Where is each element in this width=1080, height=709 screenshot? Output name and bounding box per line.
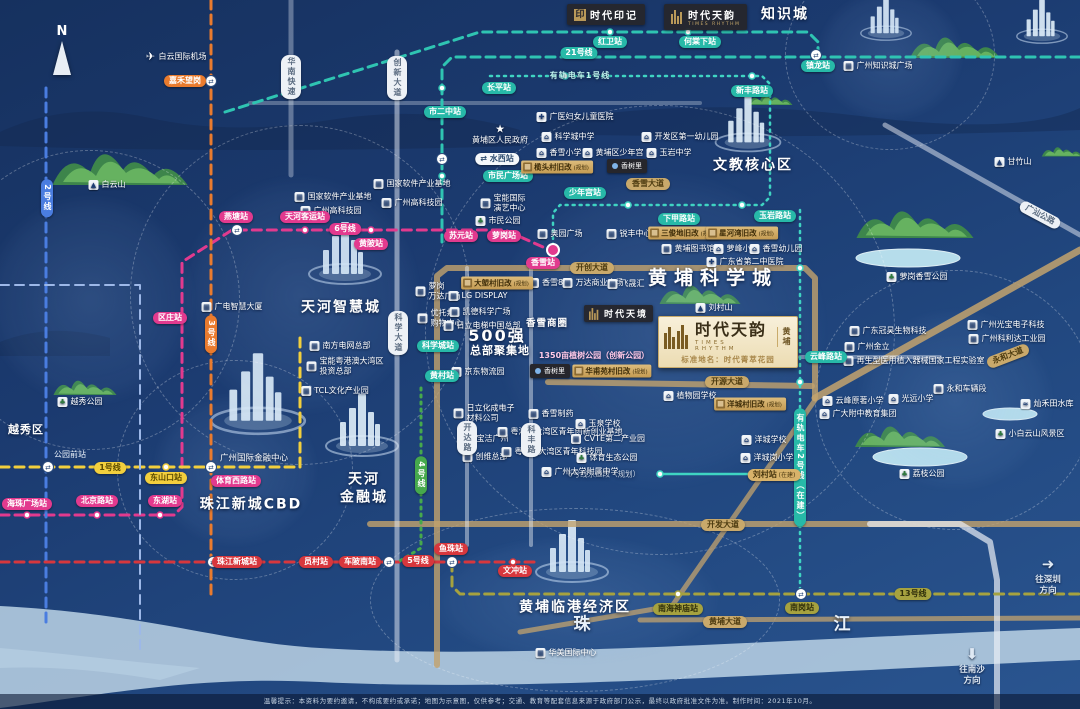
station-badge: 文冲站 (498, 565, 532, 577)
b-icon: ▦ (310, 341, 320, 351)
sch-icon: ⌂ (583, 148, 593, 158)
station-badge: 黄陂站 (354, 238, 388, 250)
sch-icon: ⌂ (714, 244, 724, 254)
sch-icon: ⌂ (820, 409, 830, 419)
building-icon: ▦ (523, 163, 532, 172)
station-dot (797, 265, 803, 271)
poi: ★黄埔区人民政府 (472, 125, 528, 146)
times-bars-icon (589, 308, 600, 320)
road-name-pill: 科丰路 (521, 423, 541, 457)
station-badge: 科学城站 (417, 340, 459, 352)
station-badge: 市二中站 (424, 106, 466, 118)
road-name-pill: 开达路 (457, 421, 477, 455)
poi-label: 广州光宝电子科技 (981, 320, 1045, 330)
poi-label: 小白云山风景区 (1009, 429, 1065, 439)
sch-icon: ⌂ (542, 132, 552, 142)
road-name-pill: 创新大道 (387, 56, 407, 100)
mt-icon: ▲ (696, 303, 706, 313)
poi: ▦广州金立 (845, 342, 890, 352)
poi-label: 锐丰中心 (620, 229, 652, 239)
times-imprint-label: 时代印记 (590, 7, 638, 22)
poi-label: CVTE第二产业园 (584, 434, 645, 444)
project-logo-card: 时代天韵 TIMES RHYTHM 黄埔 标准地名：时代菁萃花园 (658, 316, 798, 368)
poi: ▦CVTE第二产业园 (571, 434, 645, 444)
station-dot (657, 471, 663, 477)
road-name-pill: 开发大道 (701, 519, 745, 531)
hosp-icon: ✚ (537, 112, 547, 122)
station-badge: 北京路站 (76, 495, 118, 507)
poi-label: 甘竹山 (1008, 157, 1032, 167)
project-latin-name: TIMES RHYTHM (695, 340, 772, 352)
poi-label: TCL文化产业园 (314, 386, 368, 396)
region-label: 越秀区 (8, 423, 44, 437)
station-dot (439, 85, 445, 91)
station-badge: 体育西路站 (211, 475, 261, 487)
poi: ♣越秀公园 (58, 397, 103, 407)
poi: ✚广医妇女儿童医院 (537, 112, 614, 122)
station-dot (749, 73, 755, 79)
station-badge: 长平站 (482, 82, 516, 94)
poi-label: 越秀公园 (71, 397, 103, 407)
station-badge: 海珠广场站 (2, 498, 52, 510)
poi-label: 云峰原著小学 (836, 396, 884, 406)
poi: ▦锐丰中心 (607, 229, 652, 239)
b-icon: ▦ (536, 648, 546, 658)
region-label: 江 (834, 614, 857, 635)
station-badge: 萝岗站 (487, 230, 521, 242)
building-icon: ▦ (463, 279, 472, 288)
redevelopment-label: 洋城村旧改 (727, 399, 765, 410)
region-label: 知识城 (761, 6, 809, 24)
station-badge: 何棠下站 (679, 36, 721, 48)
transfer-arrows-icon: ⇄ (234, 227, 240, 235)
poi: ⌂玉泉学校 (576, 419, 621, 429)
station-badge: 区庄站 (153, 312, 187, 324)
station-badge: 云峰路站 (805, 351, 847, 363)
redevelopment-label: 星河湾旧改 (719, 228, 757, 239)
poi-label: 市民公园 (489, 216, 521, 226)
station-badge: 苏元站 (444, 230, 478, 242)
sch-icon: ⌂ (576, 419, 586, 429)
poi-label: 荔枝公园 (913, 469, 945, 479)
redevelopment-badge: ▦大塱村旧改(规划) (461, 277, 533, 290)
park-icon: ♣ (58, 397, 68, 407)
road-name-pill: 黄埔大道 (703, 616, 747, 628)
poi-label: 香雪幼儿园 (763, 244, 803, 254)
b-icon: ▦ (607, 229, 617, 239)
sch-icon: ⌂ (647, 148, 657, 158)
b-icon: ▦ (498, 427, 508, 437)
station-badge: 嘉禾望岗 (164, 75, 206, 87)
region-label: 珠 (574, 614, 597, 635)
sch-icon: ⌂ (537, 148, 547, 158)
poi-label: 华美国际中心 (549, 648, 597, 658)
redevelopment-badge: ▦华甫苑村旧改(规划) (572, 365, 651, 378)
mini-project-badge: 香树里 (530, 364, 570, 378)
poi: ♣萝岗香雪公园 (887, 272, 948, 282)
poi: ▦广州科利达工业园 (969, 334, 1046, 344)
poi-label: 玉岩中学 (660, 148, 692, 158)
station-badge: 黄村站 (425, 370, 459, 382)
station-badge: 5号线 (402, 555, 434, 567)
direction-label: 往深圳 方向 (1035, 575, 1061, 596)
sch-icon: ⌂ (889, 394, 899, 404)
sch-icon: ⌂ (664, 391, 674, 401)
poi-label: 光远小学 (902, 394, 934, 404)
road-kaiyuan (548, 382, 812, 386)
station-badge: 下甲路站 (658, 213, 700, 225)
poi-label: 南方电网总部 (323, 341, 371, 351)
poi: ▦飞晟汇 (608, 279, 645, 289)
poi-label: 广州高科技园 (395, 198, 443, 208)
poi-label: 广东省第二中医院 (720, 257, 784, 267)
building-icon: ▦ (716, 400, 725, 409)
transfer-arrows-icon: ⇄ (439, 156, 445, 164)
poi: ▦黄埔图书馆 (662, 244, 715, 254)
station-badge: 鱼珠站 (434, 543, 468, 555)
b-icon: ▦ (374, 179, 384, 189)
poi: ✚广东省第二中医院 (707, 257, 784, 267)
poi-label: 萝岗香雪公园 (900, 272, 948, 282)
station-badge: 车陂南站 (339, 556, 381, 568)
plane-icon: ✈ (146, 52, 156, 62)
redevelopment-label: 华甫苑村旧改 (585, 366, 630, 377)
b-icon: ▦ (202, 302, 212, 312)
road-name-pill: 开创大道 (570, 262, 614, 274)
b-icon: ▦ (301, 386, 311, 396)
b-icon: ▦ (307, 361, 317, 371)
station-badge: 少年宫站 (564, 187, 606, 199)
project-district: 黄埔 (777, 327, 792, 347)
project-dot-icon (535, 368, 541, 374)
sch-icon: ⌂ (750, 244, 760, 254)
building-icon: ▦ (574, 367, 583, 376)
station-badge: ⇄ 水西站 (475, 153, 519, 165)
station-badge: 公园前站 (49, 449, 91, 461)
station-dot (625, 202, 631, 208)
transfer-arrows-icon: ⇄ (449, 559, 455, 567)
mt-icon: ▲ (89, 180, 99, 190)
compass: N (44, 24, 80, 90)
poi: ⌂科学城中学 (542, 132, 595, 142)
transfer-arrows-icon: ⇄ (798, 591, 804, 599)
poi-label: 广医妇女儿童医院 (550, 112, 614, 122)
park-icon: ♣ (900, 469, 910, 479)
station-badge: 刘村站 (在建) (748, 469, 801, 481)
b-icon: ▦ (662, 244, 672, 254)
poi: ▦国家软件产业基地 (295, 192, 372, 202)
region-label: 黄埔科学城 (648, 267, 778, 291)
poi: ▦再生型医用植入器械国家工程实验室 (844, 356, 985, 366)
station-dot (302, 227, 308, 233)
station-badge: 天河客运站 (280, 211, 330, 223)
direction-arrow-icon: ➜ (1035, 555, 1061, 575)
poi: ⌂香雪幼儿园 (750, 244, 803, 254)
transfer-arrows-icon: ⇄ (45, 464, 51, 472)
direction-arrow-icon: ⬇ (959, 645, 985, 665)
b-icon: ▦ (969, 334, 979, 344)
poi-label: 国家软件产业基地 (308, 192, 372, 202)
b-icon: ▦ (934, 384, 944, 394)
station-dot (157, 512, 163, 518)
station-badge: 21号线 (560, 47, 597, 59)
poi: ▦凯德科学广场 (450, 307, 511, 317)
b-icon: ▦ (571, 434, 581, 444)
poi: ▦永和车辆段 (934, 384, 987, 394)
redevelopment-label: 榄头村旧改 (534, 162, 572, 173)
building-icon: ▦ (650, 229, 659, 238)
poi-label: 广州金立 (858, 342, 890, 352)
poi-label: 日立电梯中国总部 (457, 321, 521, 331)
poi: ♣体育生态公园 (577, 453, 638, 463)
poi: ⌂云峰原著小学 (823, 396, 884, 406)
poi: ▲刘村山 (696, 303, 733, 313)
mini-project-badge: 香树里 (607, 159, 647, 173)
station-badge: 4号线 (415, 456, 427, 494)
station-badge: 2号线 (41, 179, 53, 217)
star-icon: ★ (495, 125, 505, 135)
poi: ▦广电智慧大厦 (202, 302, 263, 312)
project-standard-name: 标准地名：时代菁萃花园 (664, 354, 792, 365)
transfer-arrows-icon: ⇄ (386, 559, 392, 567)
region-label: 天河 金融城 (340, 472, 388, 507)
b-icon: ▦ (295, 192, 305, 202)
redevelopment-label: 三俊地旧改 (661, 228, 699, 239)
b-icon: ▦ (444, 321, 454, 331)
direction-sign: ⬇往南沙 方向 (959, 645, 985, 687)
b-icon: ▦ (450, 307, 460, 317)
poi: ≈灿禾田水库 (1021, 399, 1074, 409)
poi: ▦TCL文化产业园 (301, 386, 368, 396)
station-badge: 员村站 (299, 556, 333, 568)
station-badge: 东山口站 (145, 472, 187, 484)
poi: ▦南方电网总部 (310, 341, 371, 351)
times-bars-icon (671, 10, 684, 24)
sch-icon: ⌂ (741, 453, 751, 463)
poi: ▦华美国际中心 (536, 648, 597, 658)
times-skyline-label: 时代天境 (604, 307, 648, 320)
poi-label: 京东物流园 (465, 367, 505, 377)
times-imprint-icon: 印 (574, 9, 586, 21)
b-icon: ▦ (529, 409, 539, 419)
poi-label: 黄埔区少年宫 (596, 148, 644, 158)
b-icon: ▦ (563, 278, 573, 288)
poi-label: 白云山 (102, 180, 126, 190)
station-badge: 3号线 (205, 315, 217, 353)
disclaimer: 温馨提示：本资料为要约邀请，不构成要约或承诺；地图为示意图，仅供参考；交通、教育… (0, 694, 1080, 709)
logo-times-skyline: 时代天境 (584, 305, 653, 322)
poi-label: 香雪小学 (550, 148, 582, 158)
station-badge: 南海神庙站 (653, 603, 703, 615)
redevelopment-label: 大塱村旧改 (474, 278, 512, 289)
poi-label: 国家软件产业基地 (387, 179, 451, 189)
building-icon: ▦ (708, 229, 717, 238)
redevelopment-badge: ▦榄头村旧改(规划) (521, 161, 593, 174)
poi: ♣荔枝公园 (900, 469, 945, 479)
poi: ▦宝能国际 演艺中心 (481, 193, 526, 212)
poi: ▦广州光宝电子科技 (968, 320, 1045, 330)
b-icon: ▦ (449, 291, 459, 301)
poi-label: LG DISPLAY (462, 291, 508, 301)
b-icon: ▦ (454, 408, 464, 418)
poi: ▦国家软件产业基地 (374, 179, 451, 189)
logo-times-imprint: 印 时代印记 (567, 4, 645, 25)
poi: ♣市民公园 (476, 216, 521, 226)
region-label: 1350亩植树公园（创新公园） (539, 351, 649, 361)
station-badge: 珠江新城站 (212, 556, 262, 568)
poi: ▦广东冠昊生物科技 (850, 326, 927, 336)
poi: ⌂光远小学 (889, 394, 934, 404)
mini-project-label: 香树里 (621, 161, 642, 171)
poi-label: 飞晟汇 (621, 279, 645, 289)
poi: ✈白云国际机场 (146, 52, 207, 62)
poi: ⌂香雪小学 (537, 148, 582, 158)
station-badge: 13号线 (894, 588, 931, 600)
poi: ⌂广州大学附属中学 (542, 467, 619, 477)
road-name-pill: 香雪大道 (626, 178, 670, 190)
transfer-arrows-icon: ⇄ (208, 464, 214, 472)
station-dot (94, 512, 100, 518)
poi-label: 奥园广场 (551, 229, 583, 239)
station-dot (675, 591, 681, 597)
station-badge: 6号线 (329, 223, 361, 235)
poi-label: 宝能粤港澳大湾区 投资总部 (320, 356, 384, 375)
poi-label: 白云国际机场 (159, 52, 207, 62)
region-label: 有轨电车1号线 (550, 71, 611, 81)
mt-icon: ▲ (995, 157, 1005, 167)
b-icon: ▦ (608, 279, 618, 289)
poi-label: 体育生态公园 (590, 453, 638, 463)
station-badge: 镇龙站 (801, 60, 835, 72)
poi-label: 洋城学校 (755, 435, 787, 445)
poi-label: 广州科利达工业园 (982, 334, 1046, 344)
poi: ▦LG DISPLAY (449, 291, 508, 301)
sch-icon: ⌂ (542, 467, 552, 477)
map-canvas: ⇄⇄⇄⇄⇄⇄⇄⇄⇄⇄ 知识城文教核心区黄埔科学城天河智慧城天河 金融城珠江新城C… (0, 0, 1080, 709)
station-dot (163, 464, 169, 470)
region-label: 广州国际金融中心 (220, 454, 288, 465)
poi: ⌂开发区第一幼儿园 (642, 132, 719, 142)
station-badge: 香雪站 (526, 257, 560, 269)
park-icon: ♣ (577, 453, 587, 463)
road-name-pill: 科学大道 (388, 311, 408, 355)
road-name-pill: 开源大道 (705, 376, 749, 388)
transfer-arrows-icon: ⇄ (813, 52, 819, 60)
b-icon: ▦ (968, 320, 978, 330)
poi-label: 广东冠昊生物科技 (863, 326, 927, 336)
poi-label: 凯德科学广场 (463, 307, 511, 317)
poi-label: 植物园学校 (677, 391, 717, 401)
region-label: 香雪商圈 (526, 318, 568, 330)
b-icon: ▦ (416, 286, 426, 296)
poi-label: 科学城中学 (555, 132, 595, 142)
b-icon: ▦ (845, 342, 855, 352)
project-bars-icon (664, 325, 690, 349)
station-dot (607, 29, 613, 35)
poi: ▦京东物流园 (452, 367, 505, 377)
redevelopment-badge: ▦星河湾旧改(规划) (706, 227, 778, 240)
sch-icon: ⌂ (823, 396, 833, 406)
mini-project-label: 香树里 (544, 366, 565, 376)
b-icon: ▦ (481, 198, 491, 208)
project-dot-icon (612, 163, 618, 169)
water-icon: ≈ (1021, 399, 1031, 409)
poi: ⌂洋城岗小学 (741, 453, 794, 463)
poi-label: 灿禾田水库 (1034, 399, 1074, 409)
metro-line-知识城线 (225, 32, 818, 112)
b-icon: ▦ (418, 313, 428, 323)
poi-label: 广州大学附属中学 (555, 467, 619, 477)
poi-label: 永和车辆段 (947, 384, 987, 394)
poi: ⌂洋城学校 (742, 435, 787, 445)
logo-times-rhythm-top: 时代天韵 TIMES RHYTHM (664, 4, 747, 30)
poi: ▦广州知识城广场 (844, 61, 913, 71)
poi-label: 玉泉学校 (589, 419, 621, 429)
region-label: 总部聚集地 (470, 344, 530, 358)
poi: ⌂玉岩中学 (647, 148, 692, 158)
station-badge: 东湖站 (148, 495, 182, 507)
poi-label: 广电智慧大厦 (215, 302, 263, 312)
poi-label: 刘村山 (709, 303, 733, 313)
poi: ⌂黄埔区少年宫 (583, 148, 644, 158)
compass-arrow-icon (53, 41, 71, 75)
station-dot (797, 379, 803, 385)
sch-icon: ⌂ (742, 435, 752, 445)
times-rhythm-top-label: 时代天韵 (688, 7, 740, 22)
poi: ▦宝能粤港澳大湾区 投资总部 (307, 356, 384, 375)
station-badge: 有轨电车2号线（在建） (794, 408, 806, 526)
sch-icon: ⌂ (642, 132, 652, 142)
compass-letter: N (44, 24, 80, 39)
poi: ▲甘竹山 (995, 157, 1032, 167)
poi-label: 宝能国际 演艺中心 (494, 193, 526, 212)
b-icon: ▦ (850, 326, 860, 336)
station-badge: 1号线 (94, 462, 126, 474)
poi-label: 黄埔区人民政府 (472, 136, 528, 146)
station-badge: 南岗站 (785, 602, 819, 614)
poi: ▦广州高科技园 (382, 198, 443, 208)
poi-label: 黄埔图书馆 (675, 244, 715, 254)
region-label: 天河智慧城 (301, 299, 381, 317)
park-icon: ♣ (887, 272, 897, 282)
station-badge: 玉岩路站 (754, 210, 796, 222)
metro-line-13号线 (452, 562, 1080, 594)
poi-label: 广大附中教育集团 (833, 409, 897, 419)
road-name-pill: 华南快速 (281, 55, 301, 99)
poi: ▦日立化成电子 材料公司 (454, 403, 515, 422)
poi-label: 再生型医用植入器械国家工程实验室 (857, 356, 985, 366)
poi: ▲白云山 (89, 180, 126, 190)
station-badge: 燕塘站 (219, 211, 253, 223)
poi: ⌂广大附中教育集团 (820, 409, 897, 419)
poi: ▦奥园广场 (538, 229, 583, 239)
station-dot (739, 202, 745, 208)
b-icon: ▦ (538, 229, 548, 239)
b-icon: ▦ (502, 447, 512, 457)
station-dot (368, 227, 374, 233)
park-icon: ♣ (996, 429, 1006, 439)
region-label: 珠江新城CBD (200, 496, 303, 514)
poi-label: 香雪制药 (542, 409, 574, 419)
poi: ♣小白云山风景区 (996, 429, 1065, 439)
park-icon: ♣ (476, 216, 486, 226)
region-label: 文教核心区 (713, 157, 793, 175)
station-badge: 红卫站 (593, 36, 627, 48)
poi-label: 广州知识城广场 (857, 61, 913, 71)
station-dot (24, 512, 30, 518)
hosp-icon: ✚ (707, 257, 717, 267)
poi-label: 洋城岗小学 (754, 453, 794, 463)
